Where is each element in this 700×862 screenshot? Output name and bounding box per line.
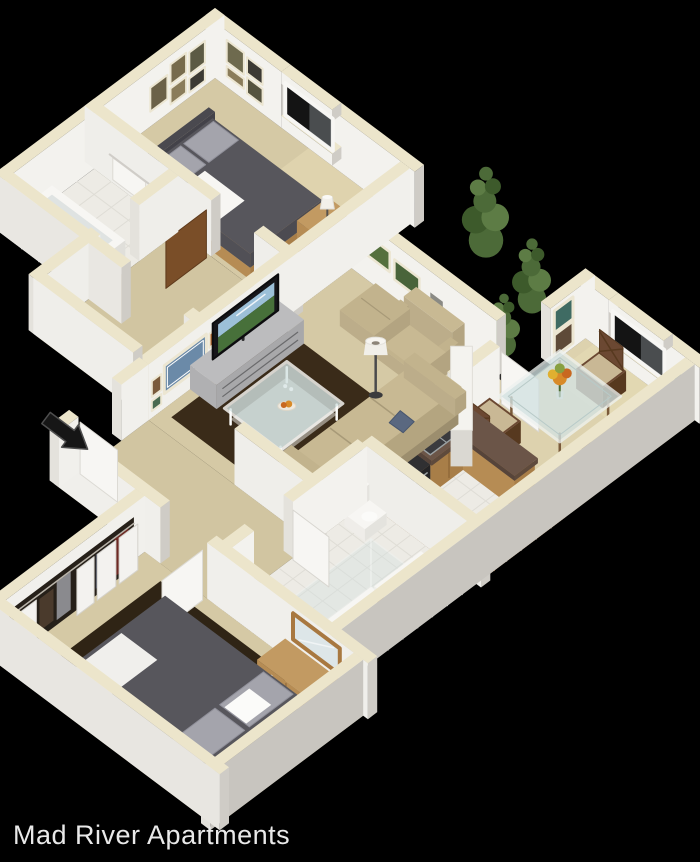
floor-plan-3d-render bbox=[0, 0, 700, 862]
page: { "caption": "Mad River Apartments", "fl… bbox=[0, 0, 700, 862]
caption: Mad River Apartments bbox=[13, 820, 290, 851]
floor-plan-stage: Mad River Apartments bbox=[0, 0, 700, 862]
